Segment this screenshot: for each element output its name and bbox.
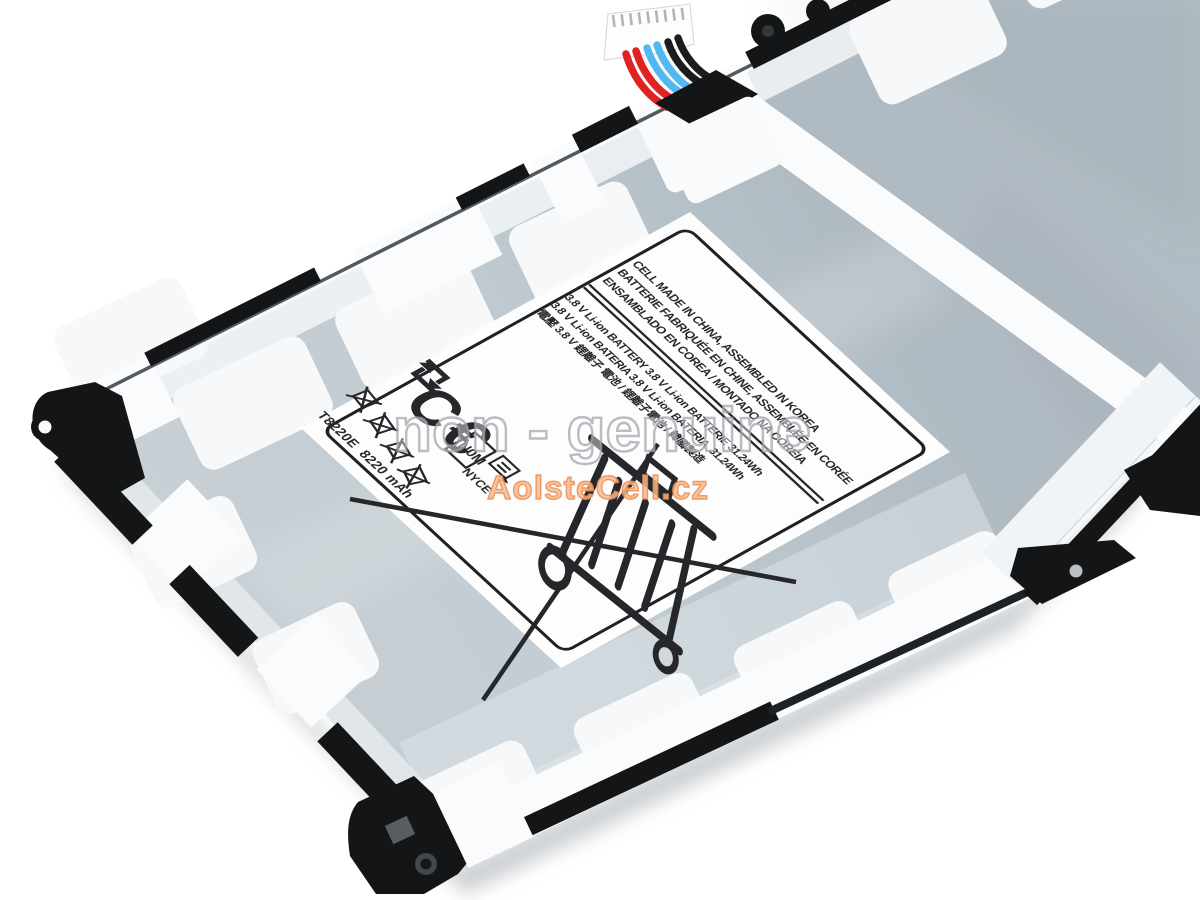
svg-text:non - genuine: non - genuine	[393, 396, 811, 465]
svg-text:AolsteCell.cz: AolsteCell.cz	[487, 469, 709, 506]
